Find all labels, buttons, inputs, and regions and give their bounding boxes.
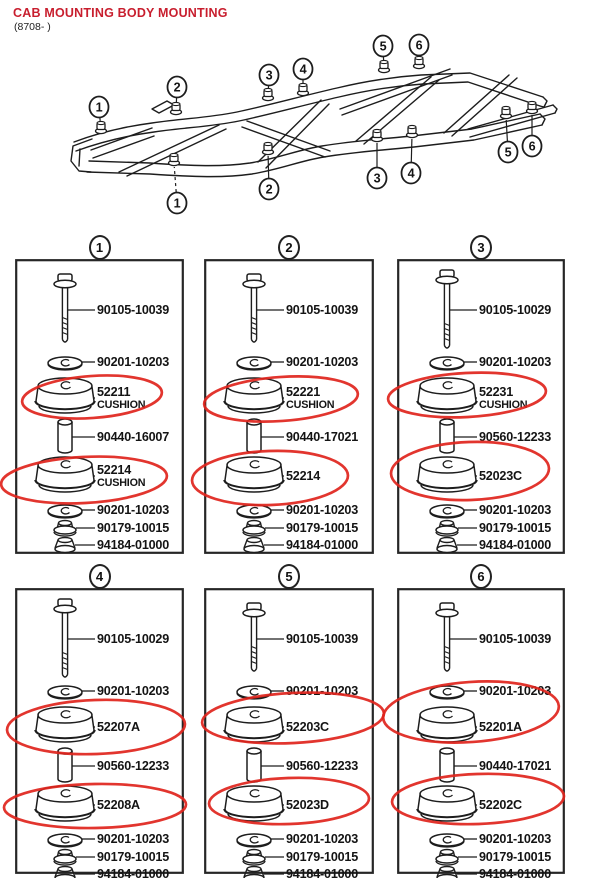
- parts-panel-4: 90105-1002990201-1020352207A90560-122335…: [15, 588, 184, 874]
- part-number-label: 90201-10203: [97, 503, 169, 517]
- chassis-callout-number: 2: [174, 81, 181, 95]
- part-number-label: 52231: [479, 385, 513, 399]
- part-glyph-washer: [48, 686, 82, 699]
- chassis-callout: 1: [168, 193, 187, 214]
- part-glyph-spacer: [440, 748, 454, 782]
- part-glyph-washer: [430, 357, 464, 370]
- parts-catalog-page: CAB MOUNTING BODY MOUNTING (8708- ) 1234…: [0, 0, 601, 878]
- part-number-label: 90201-10203: [286, 684, 358, 698]
- part-number-label: 90201-10203: [97, 832, 169, 846]
- mount-bolt-icon: [263, 142, 274, 154]
- panel-callout-2: 2: [278, 235, 300, 260]
- part-number-label: 90201-10203: [479, 832, 551, 846]
- part-glyph-washer: [237, 357, 271, 370]
- part-number-label: 94184-01000: [479, 538, 551, 552]
- chassis-callout-number: 3: [266, 69, 273, 83]
- part-number-label: 90179-10015: [286, 850, 358, 864]
- part-number-label: 90560-12233: [479, 430, 551, 444]
- mount-bolt-icon: [379, 60, 390, 72]
- part-glyph-capnut: [55, 538, 75, 553]
- part-number-label: 94184-01000: [97, 867, 169, 878]
- part-number-label: 90105-10039: [286, 303, 358, 317]
- part-sublabel: CUSHION: [286, 399, 335, 411]
- mount-bolt-icon: [372, 129, 383, 141]
- part-glyph-spacer: [58, 748, 72, 782]
- part-glyph-cushion: [224, 707, 284, 742]
- part-number-label: 90105-10039: [97, 303, 169, 317]
- part-number-label: 90201-10203: [479, 684, 551, 698]
- part-number-label: 90201-10203: [286, 832, 358, 846]
- part-glyph-cushion: [224, 378, 284, 413]
- part-glyph-nut: [436, 521, 458, 536]
- part-number-label: 90179-10015: [97, 521, 169, 535]
- mount-bolt-icon: [414, 56, 425, 68]
- part-number-label: 94184-01000: [97, 538, 169, 552]
- chassis-callout: 5: [499, 142, 518, 163]
- part-number-label: 90105-10039: [286, 632, 358, 646]
- part-glyph-bolt: [436, 270, 458, 348]
- part-glyph-nut: [243, 850, 265, 865]
- part-glyph-spacer: [247, 748, 261, 782]
- chassis-callout-number: 2: [266, 183, 273, 197]
- panel-callout-4: 4: [89, 564, 111, 589]
- part-number-label: 90560-12233: [97, 759, 169, 773]
- part-glyph-cushion: [35, 707, 95, 742]
- part-glyph-spacer: [247, 419, 261, 453]
- part-number-label: 90201-10203: [97, 684, 169, 698]
- chassis-callout: 2: [168, 77, 187, 98]
- part-glyph-capnut: [244, 538, 264, 553]
- mount-bolt-icon: [169, 153, 180, 165]
- part-glyph-capnut: [437, 538, 457, 553]
- part-glyph-washer: [237, 686, 271, 699]
- part-glyph-washer: [430, 834, 464, 847]
- part-number-label: 90440-16007: [97, 430, 169, 444]
- part-number-label: 52214: [97, 463, 131, 477]
- chassis-callout-number: 4: [408, 167, 415, 181]
- chassis-callout-number: 5: [380, 40, 387, 54]
- part-glyph-cushion: [417, 707, 477, 742]
- chassis-callout: 6: [410, 35, 429, 56]
- part-glyph-washer: [237, 505, 271, 518]
- mount-bolt-icon: [501, 106, 512, 118]
- chassis-callout: 3: [368, 168, 387, 189]
- chassis-callout: 3: [260, 65, 279, 86]
- part-glyph-nut: [243, 521, 265, 536]
- mount-bolt-icon: [171, 102, 182, 114]
- chassis-callout-number: 5: [505, 146, 512, 160]
- part-number-label: 52023C: [479, 469, 522, 483]
- part-number-label: 90201-10203: [479, 503, 551, 517]
- part-number-label: 52207A: [97, 720, 140, 734]
- chassis-frame-diagram: 123456123456: [0, 0, 601, 240]
- part-glyph-cushion: [224, 786, 284, 821]
- mount-bolt-icon: [527, 101, 538, 113]
- part-number-label: 94184-01000: [286, 867, 358, 878]
- part-glyph-washer: [430, 505, 464, 518]
- chassis-callout-number: 3: [374, 172, 381, 186]
- parts-panel-1: 90105-1003990201-1020352211CUSHION90440-…: [15, 259, 184, 554]
- part-number-label: 90560-12233: [286, 759, 358, 773]
- part-number-label: 90201-10203: [479, 355, 551, 369]
- chassis-callout: 5: [374, 36, 393, 57]
- part-number-label: 90201-10203: [286, 503, 358, 517]
- part-glyph-washer: [237, 834, 271, 847]
- mount-bolt-icon: [298, 83, 309, 95]
- mount-bolt-icon: [407, 125, 418, 137]
- part-number-label: 90201-10203: [97, 355, 169, 369]
- chassis-callout-number: 6: [529, 140, 536, 154]
- part-sublabel: CUSHION: [479, 399, 528, 411]
- part-glyph-nut: [54, 521, 76, 536]
- part-number-label: 94184-01000: [286, 538, 358, 552]
- panel-callout-3: 3: [470, 235, 492, 260]
- part-glyph-spacer: [440, 419, 454, 453]
- part-glyph-cushion: [35, 786, 95, 821]
- panel-callout-6: 6: [470, 564, 492, 589]
- part-glyph-cushion: [417, 457, 477, 492]
- part-glyph-cushion: [417, 786, 477, 821]
- part-sublabel: CUSHION: [97, 399, 146, 411]
- part-number-label: 90201-10203: [286, 355, 358, 369]
- part-number-label: 52214: [286, 469, 320, 483]
- part-glyph-spacer: [58, 419, 72, 453]
- part-number-label: 90179-10015: [479, 521, 551, 535]
- part-number-label: 52201A: [479, 720, 522, 734]
- part-number-label: 52202C: [479, 798, 522, 812]
- part-glyph-bolt: [54, 599, 76, 677]
- part-number-label: 52221: [286, 385, 320, 399]
- part-glyph-cushion: [417, 378, 477, 413]
- part-glyph-washer: [48, 505, 82, 518]
- part-number-label: 90179-10015: [286, 521, 358, 535]
- part-number-label: 90440-17021: [479, 759, 551, 773]
- chassis-callout-number: 1: [96, 101, 103, 115]
- part-number-label: 52203C: [286, 720, 329, 734]
- part-glyph-bolt: [243, 274, 265, 342]
- part-number-label: 52023D: [286, 798, 329, 812]
- mount-bolt-icon: [96, 121, 107, 133]
- part-number-label: 90440-17021: [286, 430, 358, 444]
- chassis-callout-number: 6: [416, 39, 423, 53]
- panel-callout-1: 1: [89, 235, 111, 260]
- part-number-label: 90179-10015: [97, 850, 169, 864]
- part-sublabel: CUSHION: [97, 477, 146, 489]
- part-number-label: 90105-10039: [479, 632, 551, 646]
- chassis-callout: 4: [294, 59, 313, 80]
- part-glyph-cushion: [35, 457, 95, 492]
- chassis-callout: 6: [523, 136, 542, 157]
- part-number-label: 52211: [97, 385, 131, 399]
- part-glyph-bolt: [436, 603, 458, 671]
- part-glyph-washer: [48, 357, 82, 370]
- part-number-label: 90105-10029: [479, 303, 551, 317]
- mount-bolt-icon: [263, 88, 274, 100]
- part-number-label: 90179-10015: [479, 850, 551, 864]
- chassis-callout-number: 1: [174, 197, 181, 211]
- chassis-callout: 2: [260, 179, 279, 200]
- parts-panel-5: 90105-1003990201-1020352203C90560-122335…: [204, 588, 374, 874]
- part-glyph-cushion: [35, 378, 95, 413]
- chassis-callout: 1: [90, 97, 109, 118]
- part-glyph-bolt: [54, 274, 76, 342]
- panel-callout-5: 5: [278, 564, 300, 589]
- part-glyph-washer: [430, 686, 464, 699]
- chassis-callout-number: 4: [300, 63, 307, 77]
- part-glyph-cushion: [224, 457, 284, 492]
- part-glyph-bolt: [243, 603, 265, 671]
- part-number-label: 52208A: [97, 798, 140, 812]
- part-number-label: 90105-10029: [97, 632, 169, 646]
- part-number-label: 94184-01000: [479, 867, 551, 878]
- part-glyph-nut: [436, 850, 458, 865]
- parts-panel-2: 90105-1003990201-1020352221CUSHION90440-…: [204, 259, 374, 554]
- parts-panel-3: 90105-1002990201-1020352231CUSHION90560-…: [397, 259, 565, 554]
- parts-panel-6: 90105-1003990201-1020352201A90440-170215…: [397, 588, 565, 874]
- part-glyph-washer: [48, 834, 82, 847]
- chassis-callout: 4: [402, 163, 421, 184]
- part-glyph-nut: [54, 850, 76, 865]
